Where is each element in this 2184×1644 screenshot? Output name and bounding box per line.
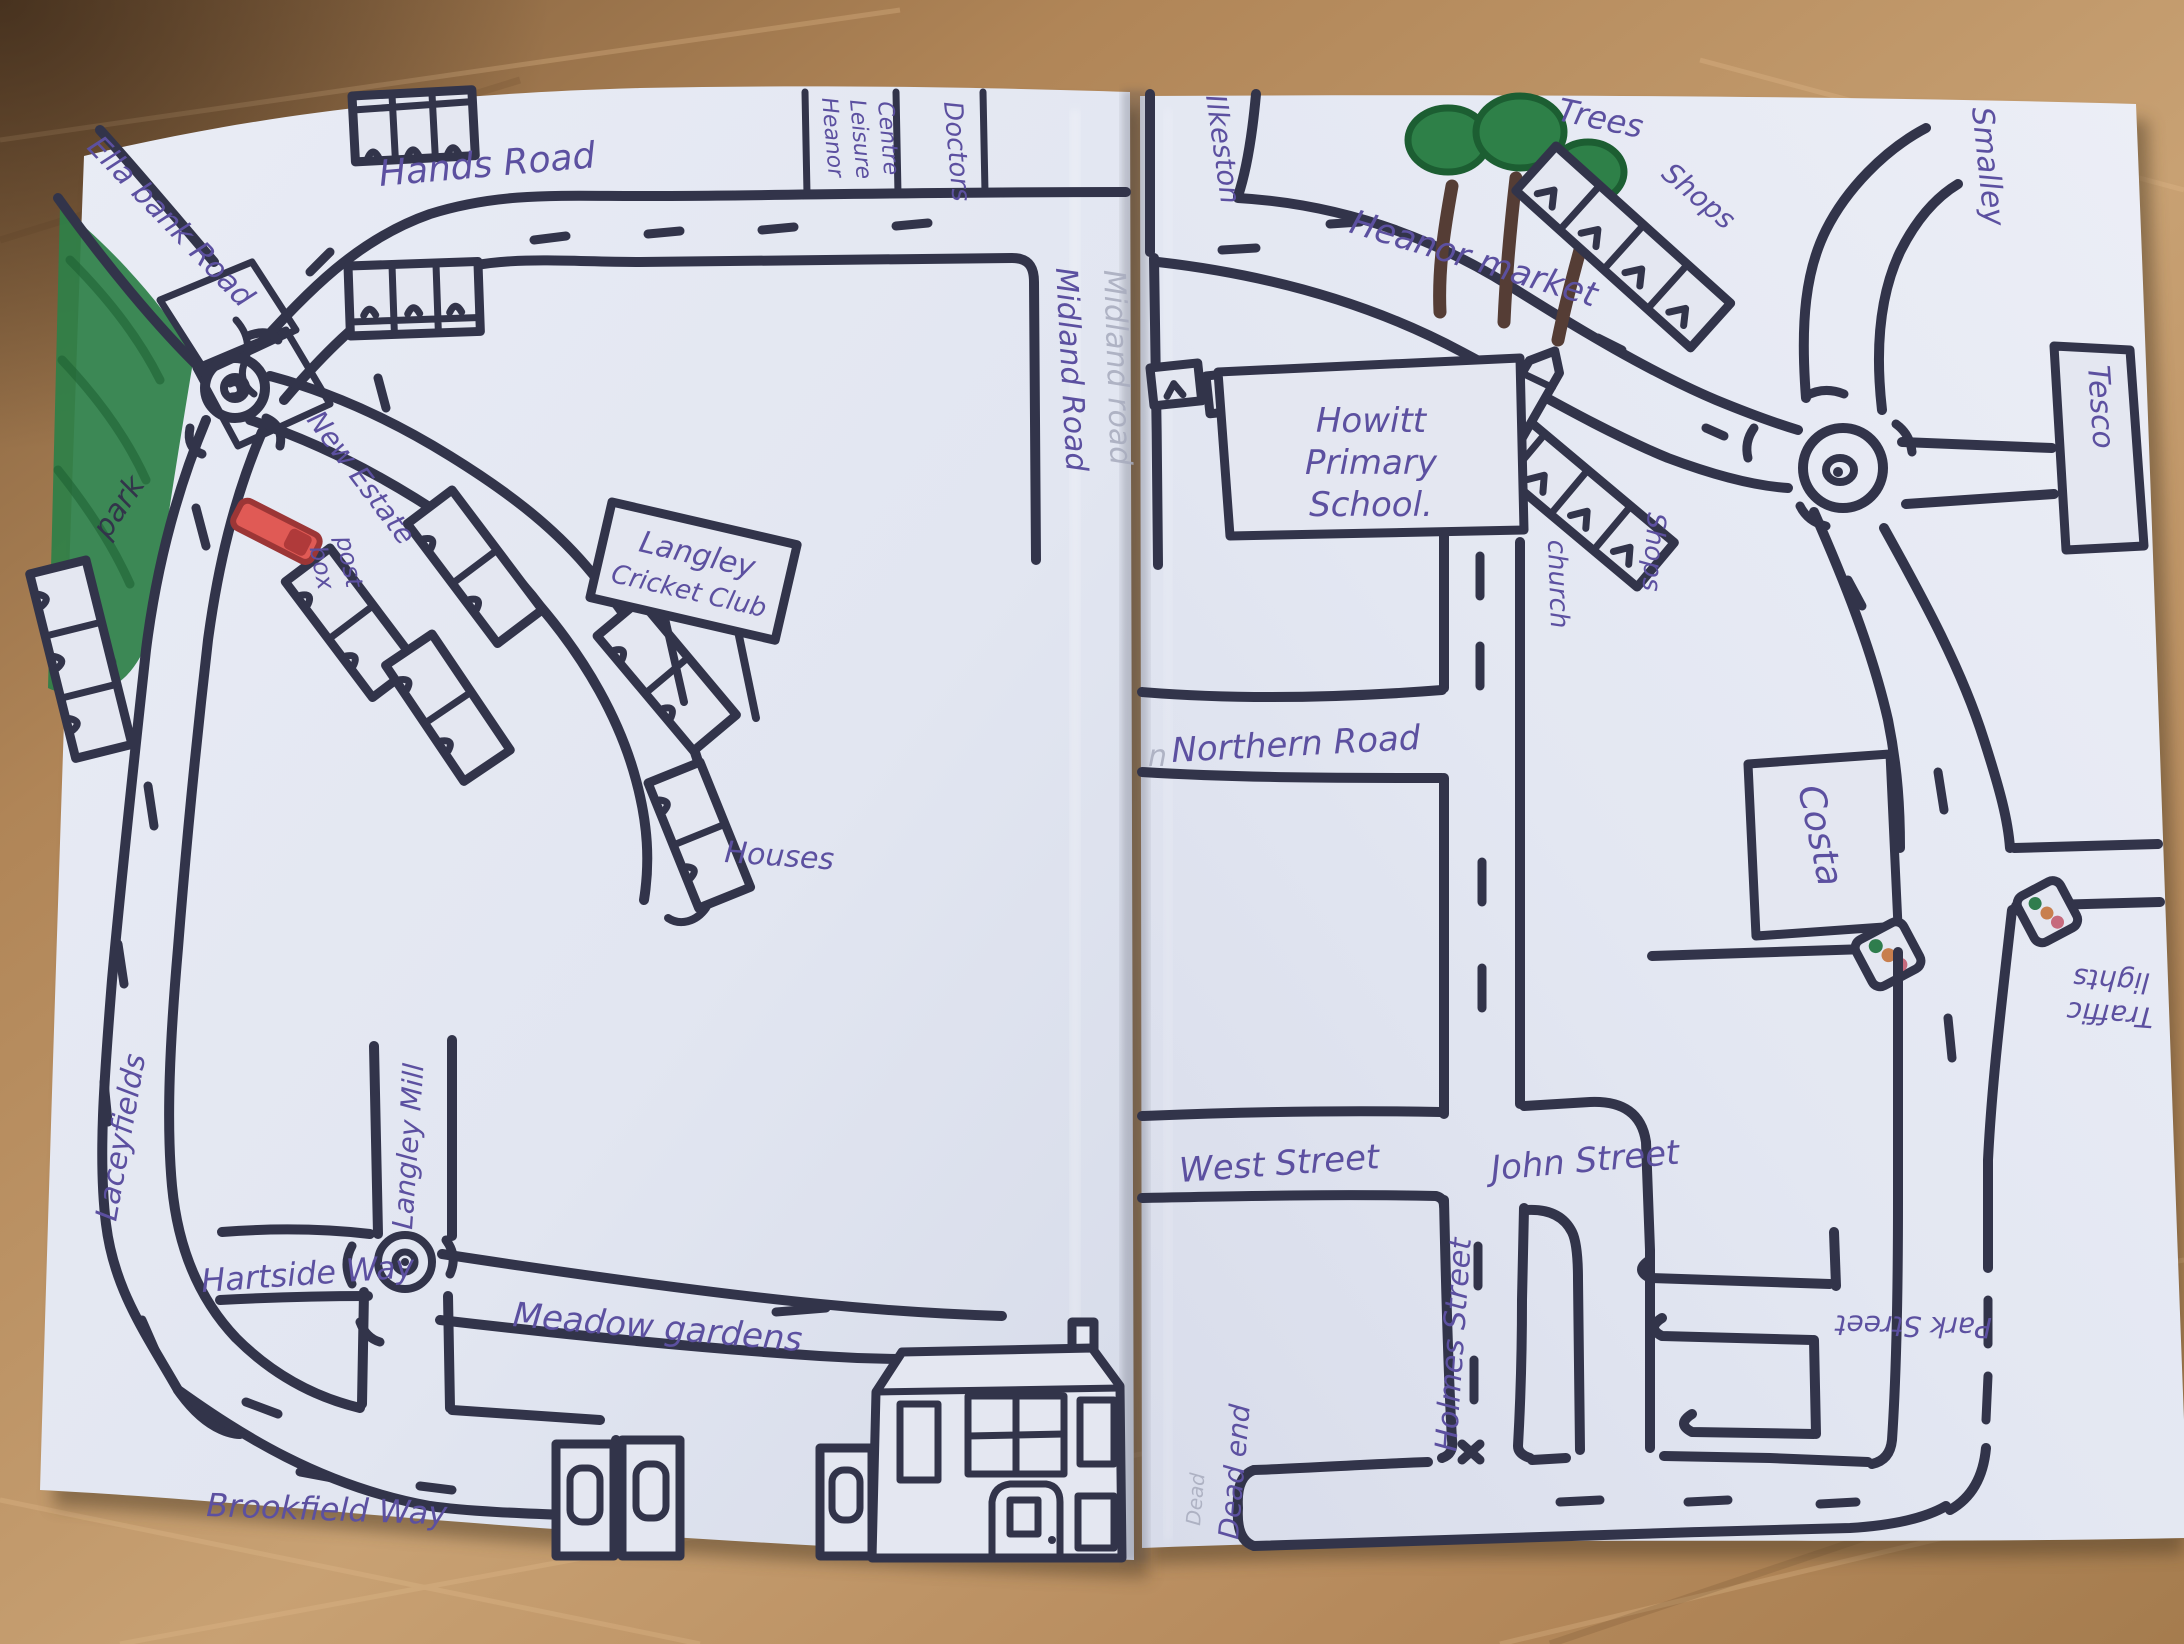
terrace-row xyxy=(348,261,480,335)
label-church: church xyxy=(1541,539,1574,629)
label-dead-end-pencil: Dead xyxy=(1181,1472,1210,1527)
label-traffic: Traffic xyxy=(2065,995,2155,1034)
label-midland-road-pencil: Midland road xyxy=(1096,269,1138,467)
label-northern-road-pencil: n xyxy=(1148,739,1167,774)
photo-hand-drawn-map: Langley Cricket Club xyxy=(0,0,2184,1644)
label-park-street: Park Street xyxy=(1834,1308,1992,1344)
label-howitt-2: Primary xyxy=(1305,443,1438,483)
howitt-school-building: Howitt Primary School. xyxy=(1218,358,1524,536)
label-lights: lights xyxy=(2072,961,2151,999)
label-howitt-1: Howitt xyxy=(1316,401,1428,441)
label-traffic-lights: Traffic lights xyxy=(2065,961,2157,1034)
label-shops-lower: Shops xyxy=(1636,512,1671,593)
label-tesco: Tesco xyxy=(2080,364,2121,450)
small-house xyxy=(820,1448,872,1556)
small-house xyxy=(556,1444,614,1556)
small-house xyxy=(622,1440,680,1556)
label-howitt-3: School. xyxy=(1309,485,1433,525)
paper-crease-right xyxy=(1164,110,1172,1540)
detached-house xyxy=(872,1322,1122,1558)
